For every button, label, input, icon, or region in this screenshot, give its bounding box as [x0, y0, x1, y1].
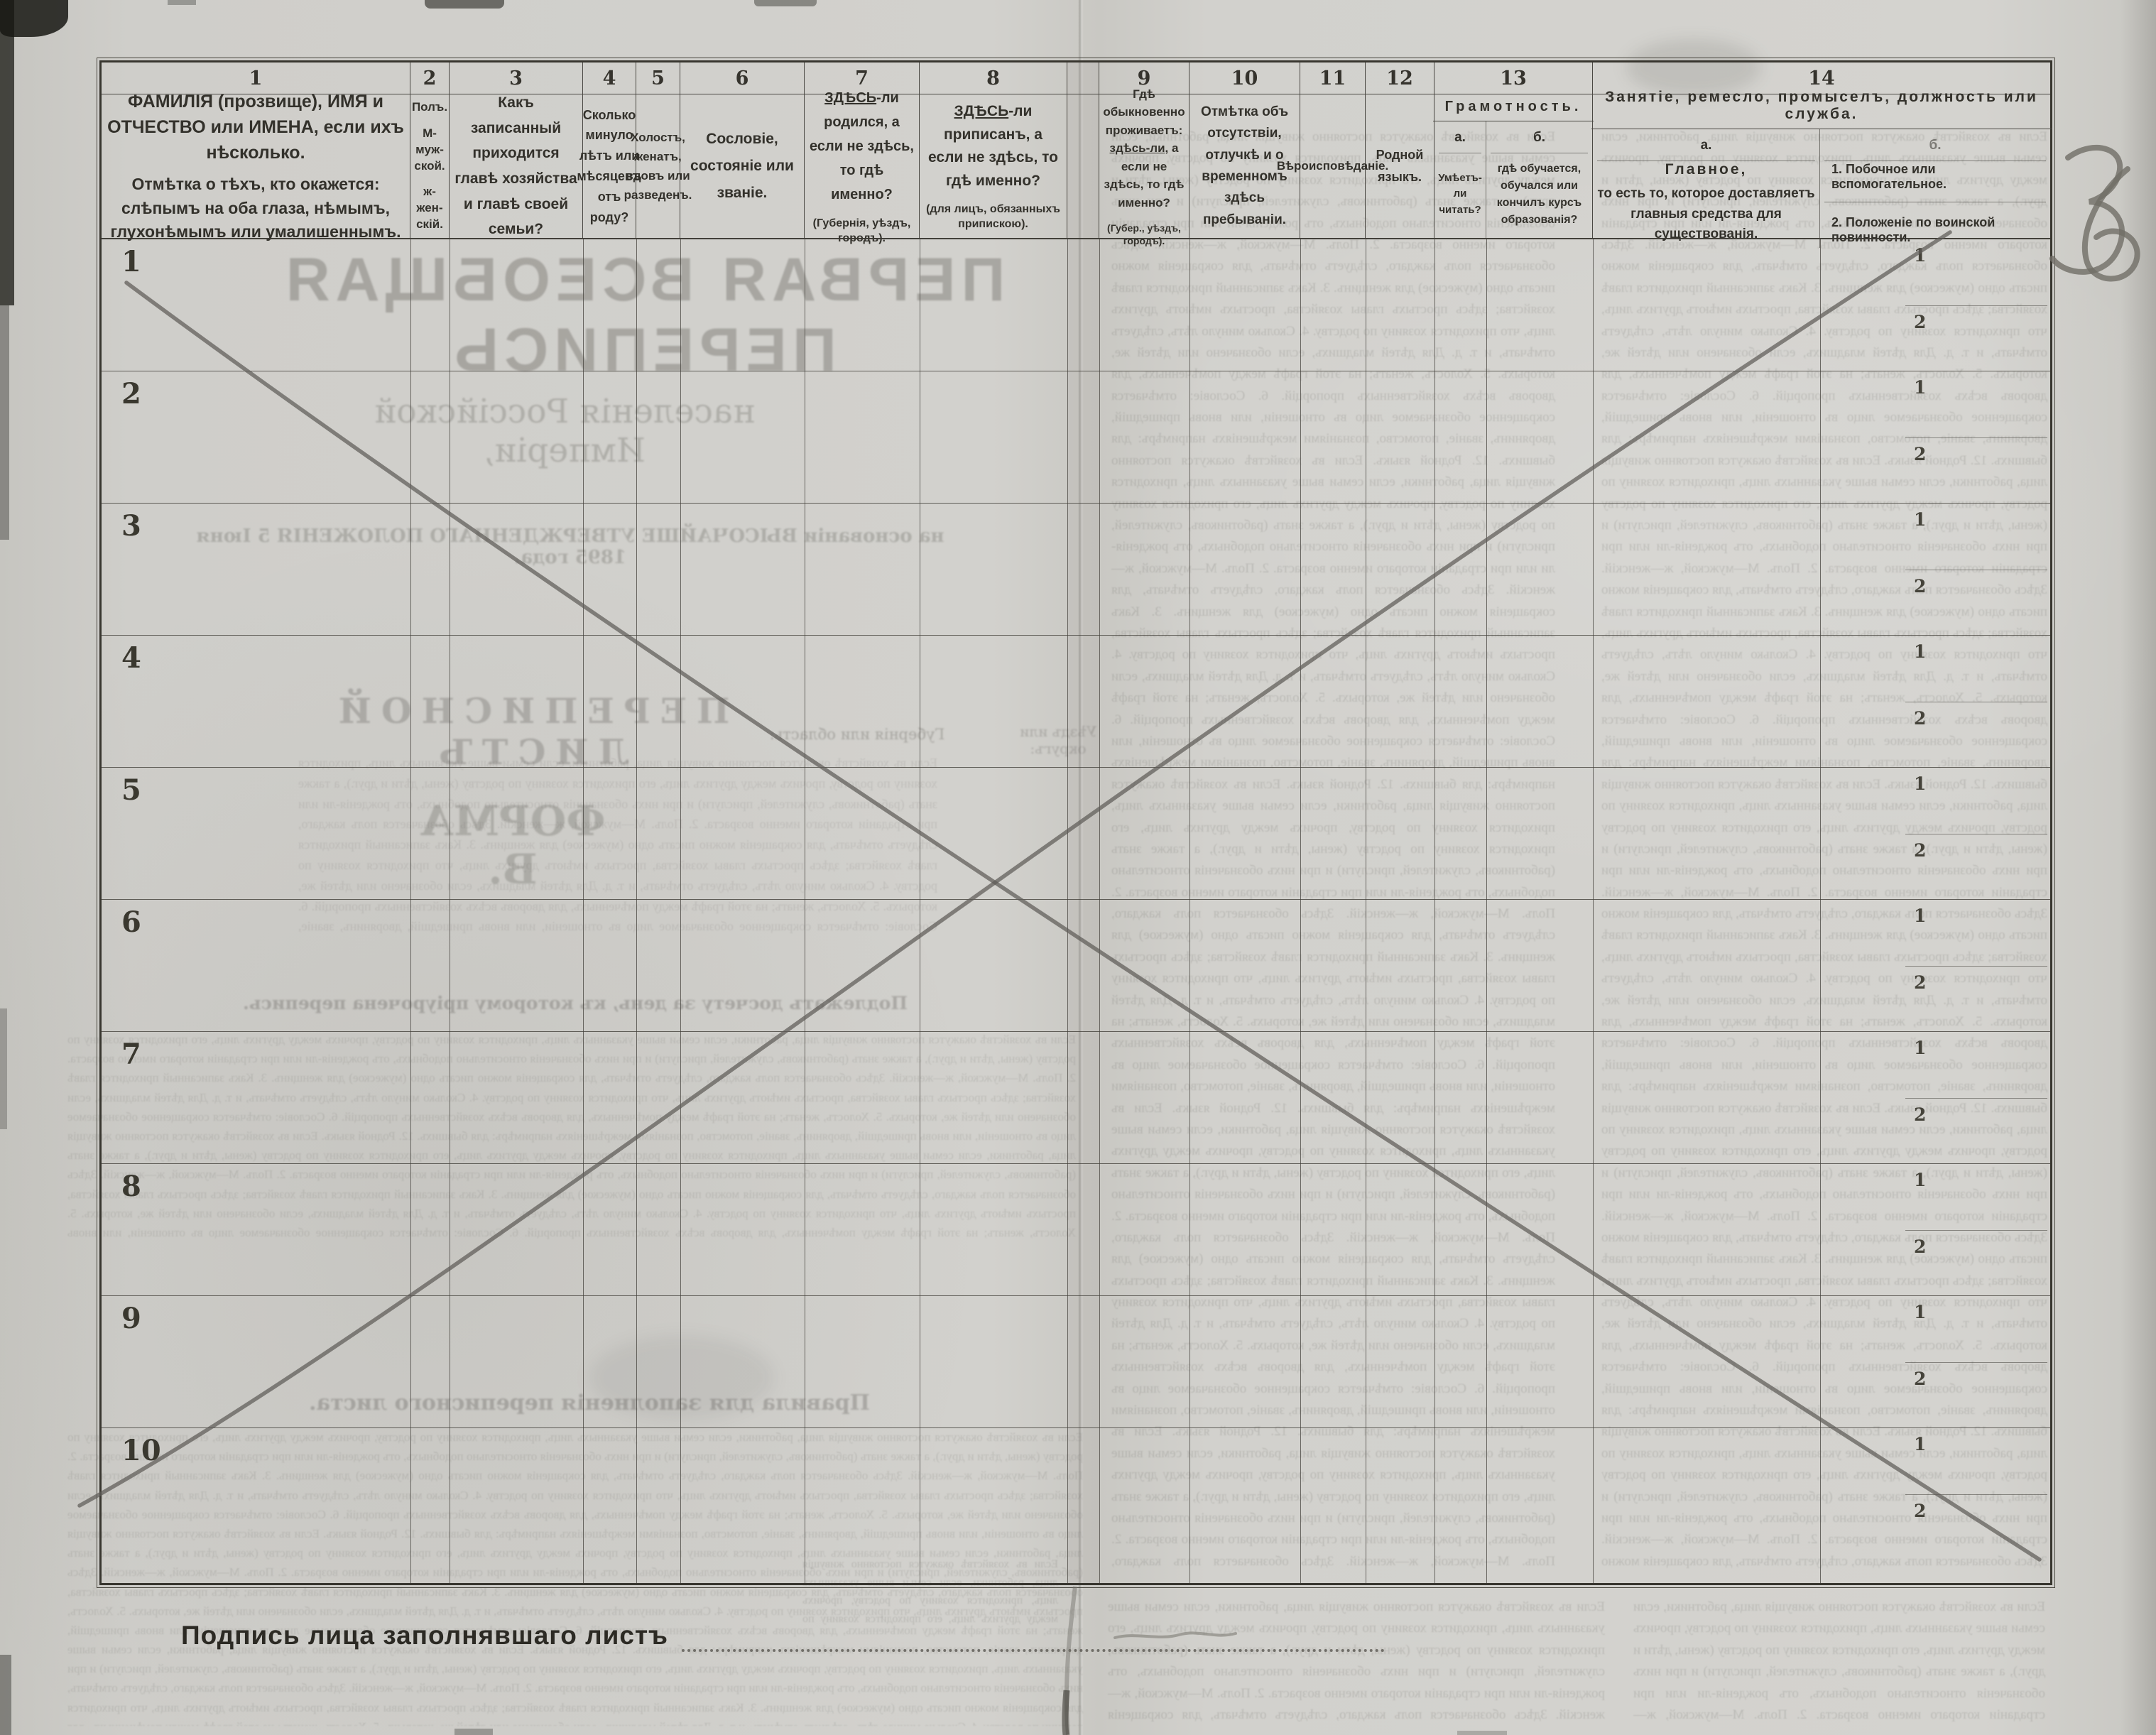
row-number: 5: [121, 773, 141, 807]
occupation-subrow-divider: [1905, 1098, 2047, 1099]
scan-artifact-left-strip: [0, 1008, 7, 1129]
occupation-subrow-label-1: 1: [1914, 1434, 1926, 1454]
scan-artifact-left-strip: [0, 305, 9, 540]
row-number: 6: [121, 905, 141, 939]
signature-label: Подпись лица заполнявшаго листъ: [181, 1621, 668, 1650]
header-relation: Какъ записанный приходится главѣ хозяйст…: [450, 94, 583, 238]
paper-right-edge: [2120, 0, 2156, 1735]
scan-artifact-bottom-speck: [454, 1729, 493, 1735]
entry-row-2: 212: [102, 371, 2050, 504]
scan-artifact-top-dash: [168, 0, 196, 5]
col-number-3: 3: [450, 62, 583, 94]
header-literacy-a: а. Умѣетъ-ли читать?: [1434, 121, 1486, 238]
occupation-subrow-label-2: 2: [1914, 1236, 1926, 1257]
header-registration-note: (для лицъ, обязанныхъ припискою).: [925, 202, 1062, 232]
occupation-subrow-label-1: 1: [1914, 509, 1926, 530]
handwritten-page-number-3: [2052, 148, 2122, 272]
header-occupation-a-label: а.: [1597, 132, 1815, 161]
header-residence-text: Гдѣ обыкновенно проживаетъ: здѣсь-ли, а …: [1103, 85, 1185, 212]
header-birthplace-rest: -ли родился, а если не здѣсь, то гдѣ име…: [810, 90, 914, 202]
col-number-4: 4: [583, 62, 636, 94]
occupation-subrow-divider: [1905, 305, 2047, 306]
pencil-signature-scribble: [1115, 1633, 1236, 1638]
header-marital-status: Холостъ, женатъ, вдовъ или разведенъ.: [636, 94, 680, 238]
header-name: ФАМИЛІЯ (прозвище), ИМЯ и ОТЧЕСТВО или И…: [102, 94, 410, 238]
occupation-subrow-label-1: 1: [1914, 245, 1926, 266]
fold-gutter-header: [1067, 94, 1099, 238]
scan-artifact-top-dash: [754, 0, 817, 6]
row-number: 8: [121, 1170, 141, 1203]
header-literacy: Грамотность. а. Умѣетъ-ли читать? б. гдѣ…: [1434, 94, 1593, 238]
occupation-subrow-label-2: 2: [1914, 444, 1926, 464]
header-sex: Полъ. М-муж-ской. ж-жен-скій.: [410, 94, 450, 238]
header-literacy-group: Грамотность.: [1433, 94, 1594, 121]
row-number: 9: [121, 1302, 141, 1335]
header-literacy-a-text: Умѣетъ-ли читать?: [1438, 153, 1482, 235]
row-number: 10: [121, 1434, 161, 1467]
col-number-6: 6: [680, 62, 805, 94]
occupation-subrow-label-2: 2: [1914, 972, 1926, 993]
header-residence-pre: Гдѣ обыкновенно проживаетъ:: [1103, 87, 1185, 137]
header-literacy-b: б. гдѣ обучается, обучался или кончилъ к…: [1486, 121, 1592, 238]
occupation-subrow-label-1: 1: [1914, 1302, 1926, 1322]
row-number: 4: [121, 641, 141, 675]
header-residence: Гдѣ обыкновенно проживаетъ: здѣсь-ли, а …: [1099, 94, 1189, 238]
occupation-subrow-label-1: 1: [1914, 1038, 1926, 1058]
entry-row-9: 912: [102, 1296, 2050, 1428]
scan-artifact-left-strip: [0, 0, 14, 305]
occupation-subrow-label-2: 2: [1914, 576, 1926, 597]
header-birthplace-text: ЗДѢСЬ-ли родился, а если не здѣсь, то гд…: [810, 86, 914, 207]
scan-artifact-bottom-speck: [1457, 1731, 1507, 1735]
header-native-language: Родной языкъ.: [1366, 94, 1434, 238]
header-occupation-a-main: Главное,: [1597, 161, 1815, 178]
col-number-2: 2: [410, 62, 450, 94]
header-literacy-subcolumns: а. Умѣетъ-ли читать? б. гдѣ обучается, о…: [1434, 121, 1592, 238]
row-number: 2: [121, 377, 141, 410]
row-number: 3: [121, 509, 141, 543]
header-occupation-b-items: 1. Побочное или вспомогательное. 2. Поло…: [1824, 161, 2046, 245]
occupation-subrow-label-2: 2: [1914, 1369, 1926, 1389]
entry-row-3: 312: [102, 504, 2050, 636]
col-number-8: 8: [920, 62, 1067, 94]
occupation-subrow-label-1: 1: [1914, 377, 1926, 398]
bottom-fold-crease-dark: [1065, 1690, 1067, 1735]
header-literacy-a-label: а.: [1439, 124, 1481, 153]
header-occupation-a-text: Главное, то есть то, которое доставляетъ…: [1597, 161, 1815, 245]
header-religion: Вѣроисповѣданіе.: [1300, 94, 1366, 238]
entry-row-10: 1012: [102, 1428, 2050, 1584]
entry-row-6: 612: [102, 900, 2050, 1032]
occupation-subrow-divider: [1905, 1230, 2047, 1231]
occupation-subrow-label-2: 2: [1914, 840, 1926, 861]
bleed-text-block: Если въ хозяйствѣ окажутся постоянно жив…: [1108, 1597, 1605, 1724]
occupation-subrow-divider: [1905, 834, 2047, 834]
occupation-subrow-divider: [1905, 570, 2047, 570]
occupation-subrow-divider: [1905, 966, 2047, 967]
header-birthplace-emph: ЗДѢСЬ: [824, 90, 876, 106]
occupation-subrow-label-1: 1: [1914, 1170, 1926, 1190]
header-sex-line2: М-муж-ской.: [414, 126, 445, 175]
header-registration-emph: ЗДѢСЬ: [954, 103, 1009, 119]
header-sex-line1: Полъ.: [412, 99, 447, 116]
entry-row-1: 112: [102, 239, 2050, 371]
col-number-10: 10: [1189, 62, 1300, 94]
occupation-subrow-label-1: 1: [1914, 773, 1926, 794]
header-occupation-a-rest: то есть то, которое доставляетъ главныя …: [1597, 184, 1815, 245]
occupation-subrow-label-2: 2: [1914, 708, 1926, 729]
header-occupation-b-item1: 1. Побочное или вспомогательное.: [1824, 162, 2046, 202]
table-body-rows: 1122123124125126127128129121012: [102, 239, 2050, 1583]
row-number: 7: [121, 1038, 141, 1071]
occupation-subrow-label-1: 1: [1914, 641, 1926, 662]
scan-artifact-left-strip: [0, 1655, 11, 1735]
header-literacy-b-text: гдѣ обучается, обучался или кончилъ курс…: [1491, 153, 1588, 235]
header-sex-line3: ж-жен-скій.: [415, 184, 444, 233]
header-occupation-subcolumns: а. Главное, то есть то, которое доставля…: [1593, 129, 2050, 248]
header-residence-emph: здѣсь-ли,: [1110, 141, 1169, 155]
occupation-subrow-divider: [1905, 437, 2047, 438]
signature-dotted-line: [682, 1649, 1385, 1652]
col-number-13: 13: [1434, 62, 1593, 94]
occupation-subrow-label-2: 2: [1914, 312, 1926, 332]
bleed-text-block: Если въ хозяйствѣ окажутся постоянно жив…: [1633, 1597, 2045, 1724]
header-occupation-group: Занятіе, ремесло, промыселъ, должность и…: [1591, 85, 2052, 129]
occupation-subrow-label-2: 2: [1914, 1104, 1926, 1125]
occupation-subrow-divider: [1905, 1494, 2047, 1495]
occupation-subrow-divider: [1905, 702, 2047, 702]
fold-gutter-cell: [1067, 62, 1099, 94]
census-form-scan: ПЕРВАЯ ВСЕОБЩАЯ ПЕРЕПИСЬ населенія Россі…: [0, 0, 2156, 1735]
bottom-fold-crease: [1067, 1587, 1075, 1735]
header-occupation-a: а. Главное, то есть то, которое доставля…: [1593, 129, 1820, 248]
scan-artifact-corner: [0, 0, 68, 37]
occupation-subrow-label-2: 2: [1914, 1501, 1926, 1521]
header-registration-text: ЗДѢСЬ-ли приписанъ, а если не здѣсь, то …: [925, 100, 1062, 192]
row-number: 1: [121, 245, 141, 278]
entry-row-8: 812: [102, 1164, 2050, 1296]
header-occupation: Занятіе, ремесло, промыселъ, должность и…: [1593, 94, 2050, 238]
header-name-line2: Отмѣтка о тѣхъ, кто окажется: слѣпымъ на…: [107, 173, 405, 244]
entry-row-5: 512: [102, 768, 2050, 900]
header-birthplace: ЗДѢСЬ-ли родился, а если не здѣсь, то гд…: [805, 94, 920, 238]
header-estate: Сословіе, состояніе или званіе.: [680, 94, 805, 238]
occupation-subrow-label-1: 1: [1914, 905, 1926, 926]
entry-row-7: 712: [102, 1032, 2050, 1164]
scan-artifact-top-dash: [425, 0, 504, 9]
header-name-line1: ФАМИЛІЯ (прозвище), ИМЯ и ОТЧЕСТВО или И…: [107, 89, 405, 166]
header-registration: ЗДѢСЬ-ли приписанъ, а если не здѣсь, то …: [920, 94, 1067, 238]
header-occupation-b: б. 1. Побочное или вспомогательное. 2. П…: [1820, 129, 2050, 248]
col-number-11: 11: [1300, 62, 1366, 94]
col-number-5: 5: [636, 62, 680, 94]
occupation-subrow-divider: [1905, 1362, 2047, 1363]
census-table: 1 2 3 4 5 6 7 8 9 10 11 12 13 14 ФАМИЛІЯ…: [99, 60, 2052, 1585]
entry-row-4: 412: [102, 636, 2050, 768]
header-literacy-b-label: б.: [1491, 124, 1588, 153]
header-occupation-b-label: б.: [1824, 132, 2046, 161]
column-header-row: ФАМИЛІЯ (прозвище), ИМЯ и ОТЧЕСТВО или И…: [102, 94, 2050, 239]
col-number-12: 12: [1366, 62, 1434, 94]
